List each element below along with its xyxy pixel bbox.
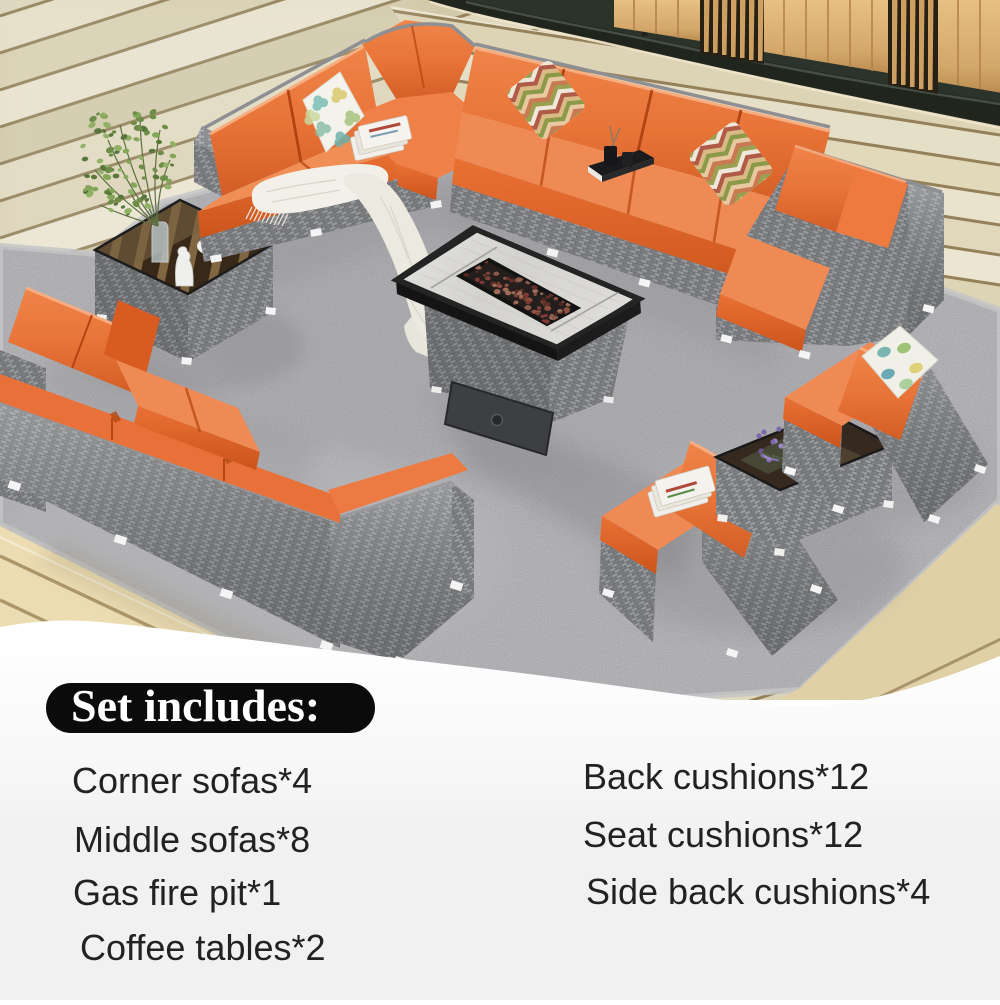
svg-text:Coffee tables*2: Coffee tables*2 [80, 927, 326, 968]
svg-text:Set includes:: Set includes: [71, 680, 320, 731]
svg-text:Gas fire pit*1: Gas fire pit*1 [73, 872, 281, 913]
svg-text:Seat cushions*12: Seat cushions*12 [583, 814, 863, 855]
svg-text:Middle sofas*8: Middle sofas*8 [74, 819, 310, 860]
svg-text:Corner sofas*4: Corner sofas*4 [72, 760, 312, 801]
svg-text:Back cushions*12: Back cushions*12 [583, 756, 869, 797]
svg-text:Side back cushions*4: Side back cushions*4 [586, 871, 930, 912]
